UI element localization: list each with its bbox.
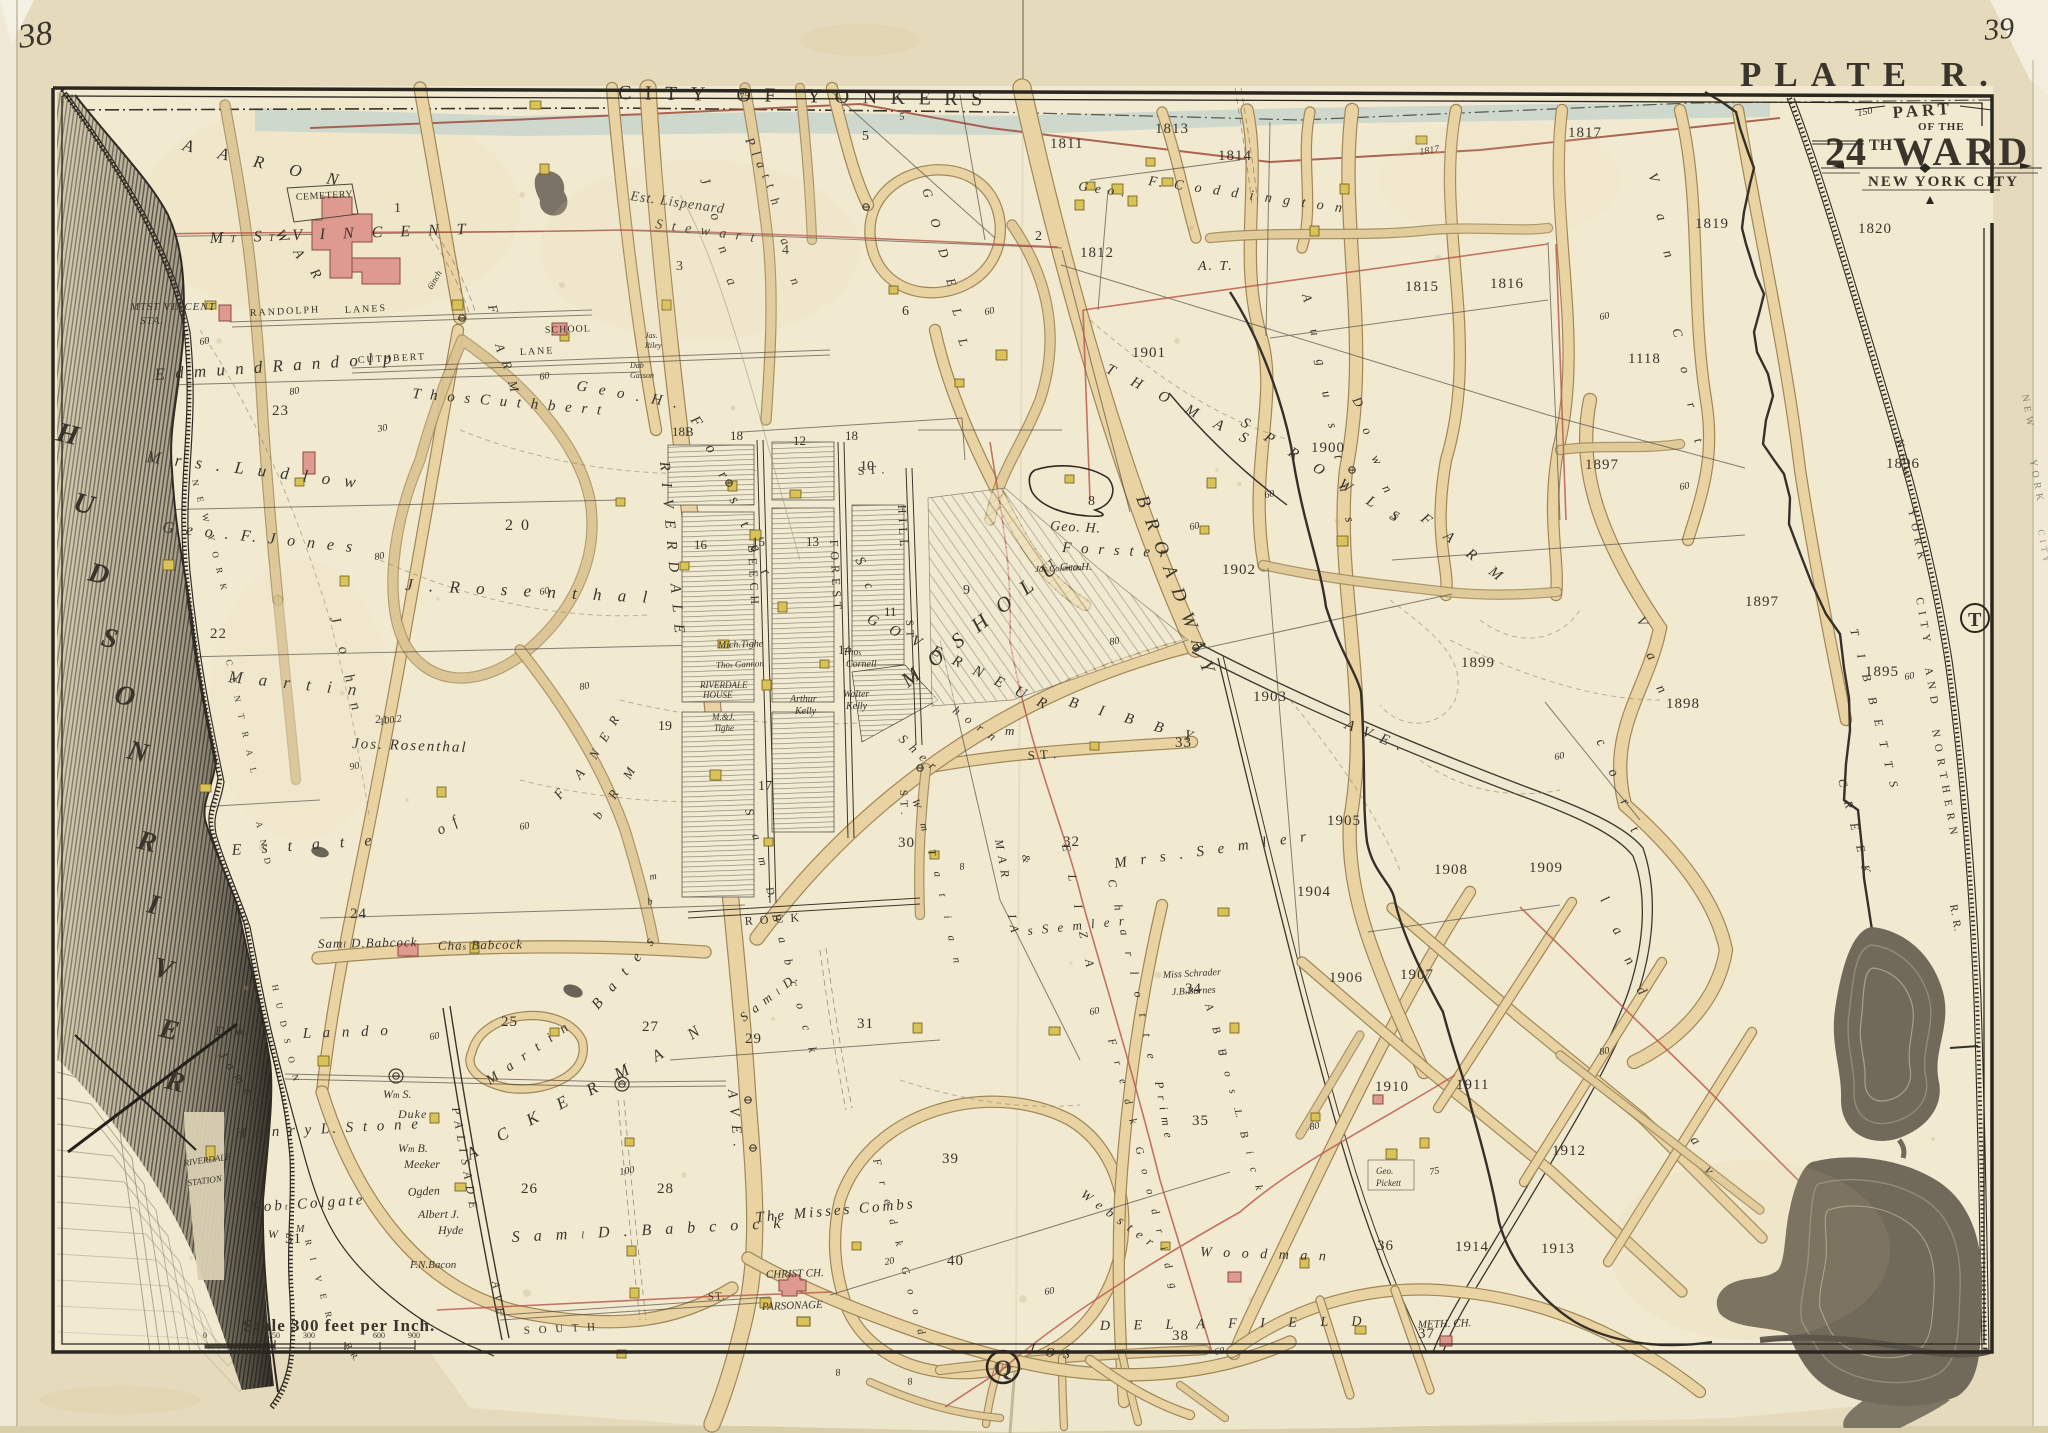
svg-text:Kelly: Kelly (845, 701, 868, 712)
svg-text:Ogden: Ogden (407, 1183, 440, 1199)
svg-text:S T .: S T . (897, 790, 910, 816)
svg-text:Dab: Dab (629, 361, 644, 370)
svg-text:1899: 1899 (1461, 655, 1495, 671)
svg-text:60: 60 (984, 305, 996, 318)
svg-text:5: 5 (862, 129, 869, 144)
svg-text:2 0: 2 0 (505, 517, 531, 534)
svg-text:1910: 1910 (1375, 1079, 1409, 1095)
svg-text:1906: 1906 (1329, 970, 1363, 986)
svg-text:M.&J.: M.&J. (711, 712, 735, 722)
svg-text:2: 2 (1035, 229, 1042, 244)
svg-text:1903: 1903 (1253, 689, 1287, 705)
svg-text:Walter: Walter (843, 689, 869, 700)
svg-text:m: m (1005, 723, 1014, 738)
svg-text:NEW YORK CITY: NEW YORK CITY (1868, 174, 2019, 190)
svg-text:11: 11 (884, 604, 897, 619)
svg-text:24: 24 (1825, 129, 1867, 174)
svg-text:PLATE R.: PLATE R. (1740, 55, 2001, 94)
svg-text:LANE: LANE (520, 345, 555, 358)
svg-text:Saml D.Babcock: Saml D.Babcock (318, 934, 418, 951)
svg-text:1: 1 (394, 201, 401, 216)
svg-text:1820: 1820 (1858, 221, 1892, 237)
svg-text:32: 32 (1063, 834, 1080, 850)
svg-text:Pickett: Pickett (1375, 1178, 1401, 1188)
svg-text:Meeker: Meeker (403, 1157, 440, 1171)
svg-text:60: 60 (1904, 670, 1916, 683)
svg-text:60: 60 (539, 585, 551, 598)
svg-text:Arthur: Arthur (789, 694, 817, 705)
svg-text:1909: 1909 (1529, 860, 1563, 876)
svg-text:Gasson: Gasson (630, 371, 654, 380)
svg-text:27: 27 (642, 1019, 659, 1035)
svg-text:10: 10 (860, 459, 874, 474)
svg-text:1819: 1819 (1695, 216, 1729, 232)
svg-text:1811: 1811 (1050, 136, 1083, 152)
svg-text:H I L L: H I L L (895, 504, 911, 548)
svg-text:1904: 1904 (1297, 884, 1331, 900)
svg-text:Cornell: Cornell (846, 659, 877, 670)
svg-text:39: 39 (942, 1151, 959, 1167)
svg-text:A. T.: A. T. (1197, 259, 1234, 274)
svg-text:12: 12 (793, 433, 806, 448)
svg-text:1913: 1913 (1541, 1241, 1575, 1257)
svg-text:S T: S T (903, 620, 916, 639)
svg-text:60: 60 (519, 820, 531, 833)
svg-text:TH: TH (1869, 137, 1893, 154)
svg-text:METH. CH.: METH. CH. (1417, 1317, 1472, 1331)
svg-text:1897: 1897 (1585, 457, 1619, 473)
svg-text:60: 60 (1599, 310, 1611, 323)
svg-text:1905: 1905 (1327, 813, 1361, 829)
svg-text:T: T (1968, 609, 1982, 631)
svg-text:150: 150 (268, 1331, 280, 1340)
svg-text:Duke: Duke (397, 1107, 427, 1121)
svg-text:CHRIST CH.: CHRIST CH. (766, 1267, 824, 1281)
svg-text:80: 80 (579, 680, 591, 693)
svg-text:S T .: S T . (1027, 746, 1057, 763)
svg-text:Mich.Tighe: Mich.Tighe (717, 638, 764, 651)
svg-text:1118: 1118 (1628, 351, 1661, 367)
svg-text:LANES: LANES (345, 303, 388, 316)
svg-text:80: 80 (374, 550, 386, 563)
svg-text:Riley: Riley (644, 341, 662, 350)
svg-text:900: 900 (408, 1331, 420, 1340)
svg-text:30: 30 (898, 835, 915, 851)
svg-text:60: 60 (429, 1030, 441, 1043)
svg-text:1813: 1813 (1155, 121, 1189, 137)
svg-text:60: 60 (1554, 750, 1566, 763)
svg-text:1908: 1908 (1434, 862, 1468, 878)
svg-text:1911: 1911 (1456, 1077, 1489, 1093)
svg-text:80: 80 (289, 385, 301, 398)
svg-text:Geo.: Geo. (1376, 1166, 1393, 1176)
svg-text:1897: 1897 (1745, 594, 1779, 610)
svg-text:23: 23 (272, 403, 289, 419)
svg-text:13: 13 (806, 534, 819, 549)
svg-text:Chas Babcock: Chas Babcock (438, 937, 523, 953)
svg-text:1814: 1814 (1218, 148, 1252, 164)
svg-text:Tighe: Tighe (714, 723, 734, 733)
svg-text:1907: 1907 (1400, 967, 1434, 983)
svg-text:300: 300 (303, 1331, 315, 1340)
svg-text:18B: 18B (672, 424, 694, 439)
svg-text:Wm B.: Wm B. (398, 1141, 428, 1155)
svg-text:60: 60 (1189, 520, 1201, 533)
svg-text:18: 18 (730, 428, 743, 443)
svg-text:Wm S.: Wm S. (383, 1087, 412, 1101)
svg-text:36: 36 (1377, 1238, 1394, 1254)
svg-text:15: 15 (752, 534, 765, 549)
svg-text:1812: 1812 (1080, 245, 1114, 261)
svg-text:W: W (268, 1227, 279, 1241)
svg-text:1898: 1898 (1666, 696, 1700, 712)
svg-text:600: 600 (373, 1331, 385, 1340)
svg-text:60: 60 (1264, 488, 1276, 501)
svg-text:16: 16 (694, 537, 708, 552)
svg-text:25: 25 (501, 1014, 518, 1030)
svg-text:WARD: WARD (1893, 129, 2031, 174)
svg-text:29: 29 (745, 1031, 762, 1047)
svg-text:0: 0 (203, 1331, 207, 1340)
svg-text:80: 80 (1599, 1045, 1611, 1058)
svg-text:18: 18 (845, 428, 858, 443)
svg-text:1914: 1914 (1455, 1239, 1489, 1255)
svg-text:51: 51 (285, 1231, 302, 1247)
svg-text:80: 80 (1309, 1120, 1321, 1133)
svg-text:60: 60 (1679, 480, 1691, 493)
svg-text:33: 33 (1175, 735, 1192, 751)
svg-text:Geo. H.: Geo. H. (1050, 519, 1102, 537)
svg-text:Q: Q (994, 1356, 1012, 1381)
svg-text:28: 28 (657, 1181, 674, 1197)
svg-text:20: 20 (884, 1255, 896, 1268)
svg-text:1912: 1912 (1552, 1143, 1586, 1159)
svg-text:Kelly: Kelly (794, 706, 817, 717)
svg-text:Geo.H.: Geo.H. (1060, 561, 1092, 573)
svg-text:ST.: ST. (708, 1290, 726, 1303)
svg-text:17: 17 (758, 779, 772, 794)
svg-text:60: 60 (1089, 1005, 1101, 1018)
svg-text:J.B.Barnes: J.B.Barnes (1172, 985, 1217, 998)
svg-text:Thos: Thos (843, 647, 862, 658)
svg-text:35: 35 (1192, 1113, 1209, 1129)
svg-text:PARSONAGE: PARSONAGE (761, 1299, 824, 1313)
svg-text:30: 30 (376, 422, 389, 435)
svg-text:1901: 1901 (1132, 345, 1166, 361)
svg-text:F.N.Bacon: F.N.Bacon (409, 1259, 457, 1271)
svg-text:40: 40 (947, 1253, 964, 1269)
svg-text:1815: 1815 (1405, 279, 1439, 295)
svg-text:1816: 1816 (1490, 276, 1524, 292)
svg-text:38: 38 (15, 15, 55, 57)
svg-text:26: 26 (521, 1181, 538, 1197)
svg-text:Thos Gannon: Thos Gannon (716, 658, 765, 670)
svg-text:L a n d o: L a n d o (302, 1023, 393, 1042)
svg-text:1902: 1902 (1222, 562, 1256, 578)
svg-text:MTST VINCENT: MTST VINCENT (129, 301, 216, 313)
svg-text:60: 60 (539, 370, 551, 383)
svg-text:Hyde: Hyde (437, 1223, 464, 1237)
svg-text:80: 80 (1109, 635, 1121, 648)
svg-text:D. W.: D. W. (214, 1023, 249, 1038)
svg-text:60: 60 (199, 335, 211, 348)
svg-text:24: 24 (350, 906, 367, 922)
svg-text:6: 6 (902, 304, 909, 319)
svg-text:39: 39 (1982, 11, 2016, 47)
svg-text:Albert J.: Albert J. (417, 1207, 459, 1221)
svg-text:RIVERDALE: RIVERDALE (699, 680, 748, 690)
svg-text:9: 9 (963, 583, 970, 598)
svg-text:19: 19 (658, 719, 672, 734)
svg-text:STA.: STA. (140, 315, 164, 327)
svg-text:HOUSE: HOUSE (702, 690, 733, 700)
svg-text:60: 60 (1044, 1285, 1056, 1298)
svg-text:SCHOOL: SCHOOL (545, 323, 591, 336)
svg-text:31: 31 (857, 1016, 874, 1032)
svg-text:8: 8 (1088, 494, 1095, 509)
svg-text:75: 75 (1429, 1165, 1441, 1178)
